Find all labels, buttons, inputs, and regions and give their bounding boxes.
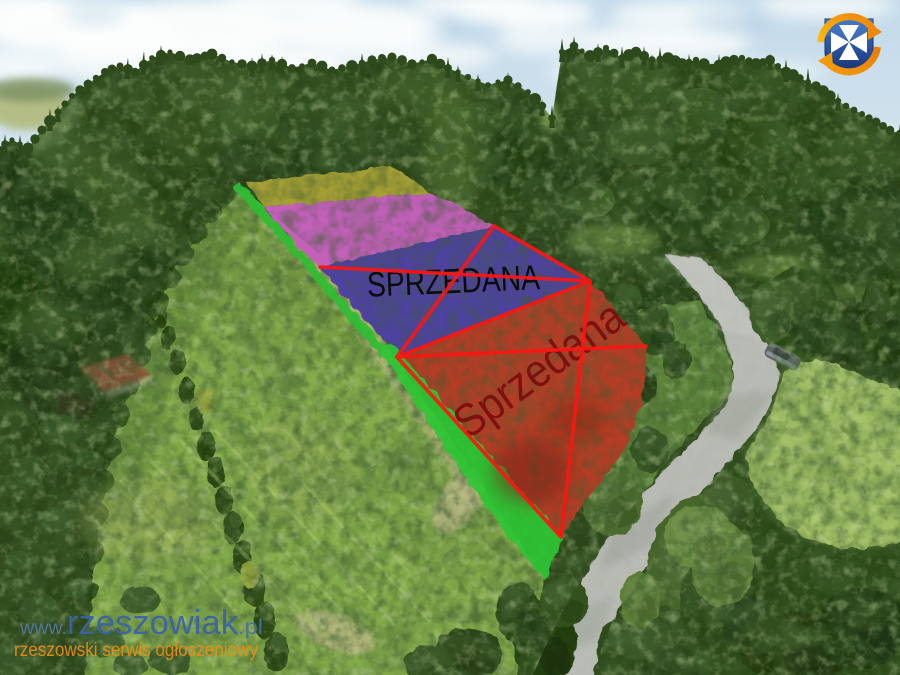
svg-text:.pl: .pl (238, 616, 263, 639)
svg-text:www.: www. (19, 618, 67, 639)
svg-text:rzeszowiak: rzeszowiak (67, 604, 239, 642)
svg-text:rzeszowski serwis ogłoszeniowy: rzeszowski serwis ogłoszeniowy (14, 639, 258, 661)
